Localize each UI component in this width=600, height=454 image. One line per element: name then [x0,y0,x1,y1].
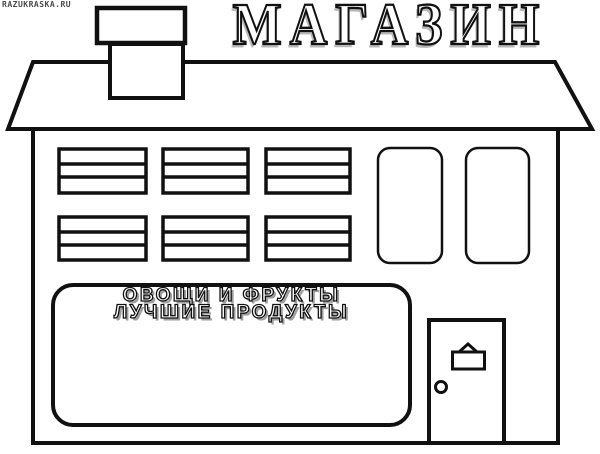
doorknob-icon [436,382,447,393]
storefront-sign-line2: ЛУЧШИЕ ПРОДУКТЫ [53,305,410,322]
storefront-sign-text: ОВОЩИ И ФРУКТЫ ЛУЧШИЕ ПРОДУКТЫ [53,288,410,321]
roof [8,62,592,129]
building-lineart [0,0,600,454]
chimney-body [110,44,183,98]
striped-window [266,149,350,193]
striped-window [163,217,248,260]
tall-window [378,148,442,263]
coloring-page: RAZUKRASKA.RU МАГАЗИН ОВОЩИ И ФРУКТЫ ЛУЧ… [0,0,600,454]
striped-window [266,217,350,260]
striped-window [59,217,146,260]
watermark: RAZUKRASKA.RU [2,0,71,9]
page-title: МАГАЗИН [218,0,562,55]
chimney-cap [97,8,185,43]
tall-window [466,148,529,263]
striped-window [59,149,146,193]
striped-window [163,149,248,193]
